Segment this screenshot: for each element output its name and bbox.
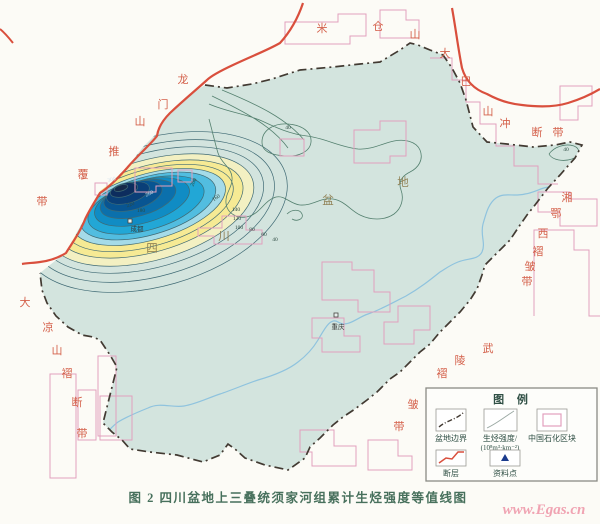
city-marker-icon	[334, 313, 338, 317]
dabashan-thrust-belt-char-4: 断	[532, 125, 543, 139]
legend-box: 图 例 盆地边界 生烃强度/ (10⁸m³·km⁻²) 中国石化区块 断层 资料…	[426, 388, 597, 481]
edge-fault-tick	[0, 29, 13, 43]
basin-name-char-1: 川	[218, 230, 230, 243]
contour-label-80: 80	[249, 227, 255, 233]
wuling-fold-belt-char-1: 陵	[455, 354, 466, 367]
legend-datapoint-label: 资料点	[493, 468, 517, 478]
micangshan-char-0: 米	[317, 22, 328, 35]
dabashan-thrust-belt-char-3: 冲	[500, 116, 511, 130]
contour-label-180: 180	[137, 208, 146, 214]
contour-label-100: 100	[235, 225, 244, 231]
basin-name-char-2: 盆	[322, 193, 334, 207]
figure-caption: 图 2 四川盆地上三叠统须家河组累计生烃强度等值线图	[128, 490, 467, 505]
dabashan-thrust-belt-char-1: 巴	[461, 76, 472, 88]
wuling-fold-belt-char-0: 武	[483, 342, 494, 355]
xiangexi-fold-belt-char-4: 皱	[525, 260, 536, 273]
micangshan-char-2: 山	[410, 28, 421, 41]
longmenshan-thrust-belt-char-2: 山	[135, 115, 146, 128]
basin-name-char-3: 地	[397, 176, 409, 189]
longmenshan-thrust-belt-char-5: 带	[37, 195, 48, 208]
longmenshan-thrust-belt-char-4: 覆	[78, 168, 89, 181]
xiangexi-fold-belt-char-0: 湘	[562, 190, 573, 204]
daliangshan-fold-fault-belt-char-1: 凉	[43, 320, 54, 334]
contour-label-40: 40	[272, 237, 278, 243]
legend-intensity-label: 生烃强度/	[483, 433, 518, 443]
watermark: www.Egas.cn	[503, 502, 586, 518]
dabashan-thrust-belt-char-0: 大	[440, 46, 451, 60]
wuling-fold-belt-char-3: 皱	[408, 398, 419, 411]
xiangexi-fold-belt-char-3: 褶	[533, 244, 544, 258]
wuling-fold-belt-char-4: 带	[394, 420, 405, 433]
daliangshan-fold-fault-belt-char-5: 带	[77, 427, 88, 440]
daliangshan-fold-fault-belt-char-0: 大	[20, 295, 31, 309]
xiangexi-fold-belt-char-5: 带	[522, 275, 533, 288]
figure-page: 龙门山推覆带米仓山大巴山冲断带湘鄂西褶皱带武陵褶皱带大凉山褶断带 四川盆地 40…	[0, 0, 600, 524]
contour-label-120: 120	[233, 216, 242, 222]
legend-title: 图 例	[493, 392, 533, 406]
contour-label-140: 140	[232, 207, 241, 213]
contour-label-40: 40	[285, 125, 291, 131]
legend-sinopec-swatch	[537, 409, 567, 431]
contour-label-60: 60	[261, 232, 267, 238]
dabashan-thrust-belt-char-2: 山	[483, 105, 494, 118]
legend-fault-label: 断层	[443, 468, 459, 478]
xiangexi-fold-belt-char-2: 西	[538, 228, 549, 240]
micangshan-char-1: 仓	[373, 19, 384, 33]
city-label-0: 成都	[131, 224, 145, 233]
city-marker-icon	[128, 219, 132, 223]
longmenshan-thrust-belt-char-0: 龙	[178, 73, 189, 86]
xiangexi-fold-belt-char-1: 鄂	[551, 207, 562, 220]
basin-name-char-0: 四	[146, 243, 158, 255]
dabashan-fault	[452, 8, 600, 106]
longmenshan-thrust-belt-char-3: 推	[109, 144, 120, 158]
daliangshan-fold-fault-belt-char-4: 断	[72, 395, 83, 409]
daliangshan-fold-fault-belt-char-3: 褶	[62, 366, 73, 380]
legend-basin-boundary-label: 盆地边界	[435, 433, 467, 443]
city-label-1: 重庆	[332, 322, 346, 331]
daliangshan-fold-fault-belt-char-2: 山	[52, 344, 63, 357]
contour-label-40: 40	[563, 147, 569, 153]
longmenshan-thrust-belt-char-1: 门	[158, 97, 169, 111]
wuling-fold-belt-char-2: 褶	[437, 366, 448, 380]
legend-sinopec-label: 中国石化区块	[528, 433, 576, 443]
dabashan-thrust-belt-char-5: 带	[553, 126, 564, 139]
map-canvas: 龙门山推覆带米仓山大巴山冲断带湘鄂西褶皱带武陵褶皱带大凉山褶断带 四川盆地 40…	[0, 0, 600, 524]
